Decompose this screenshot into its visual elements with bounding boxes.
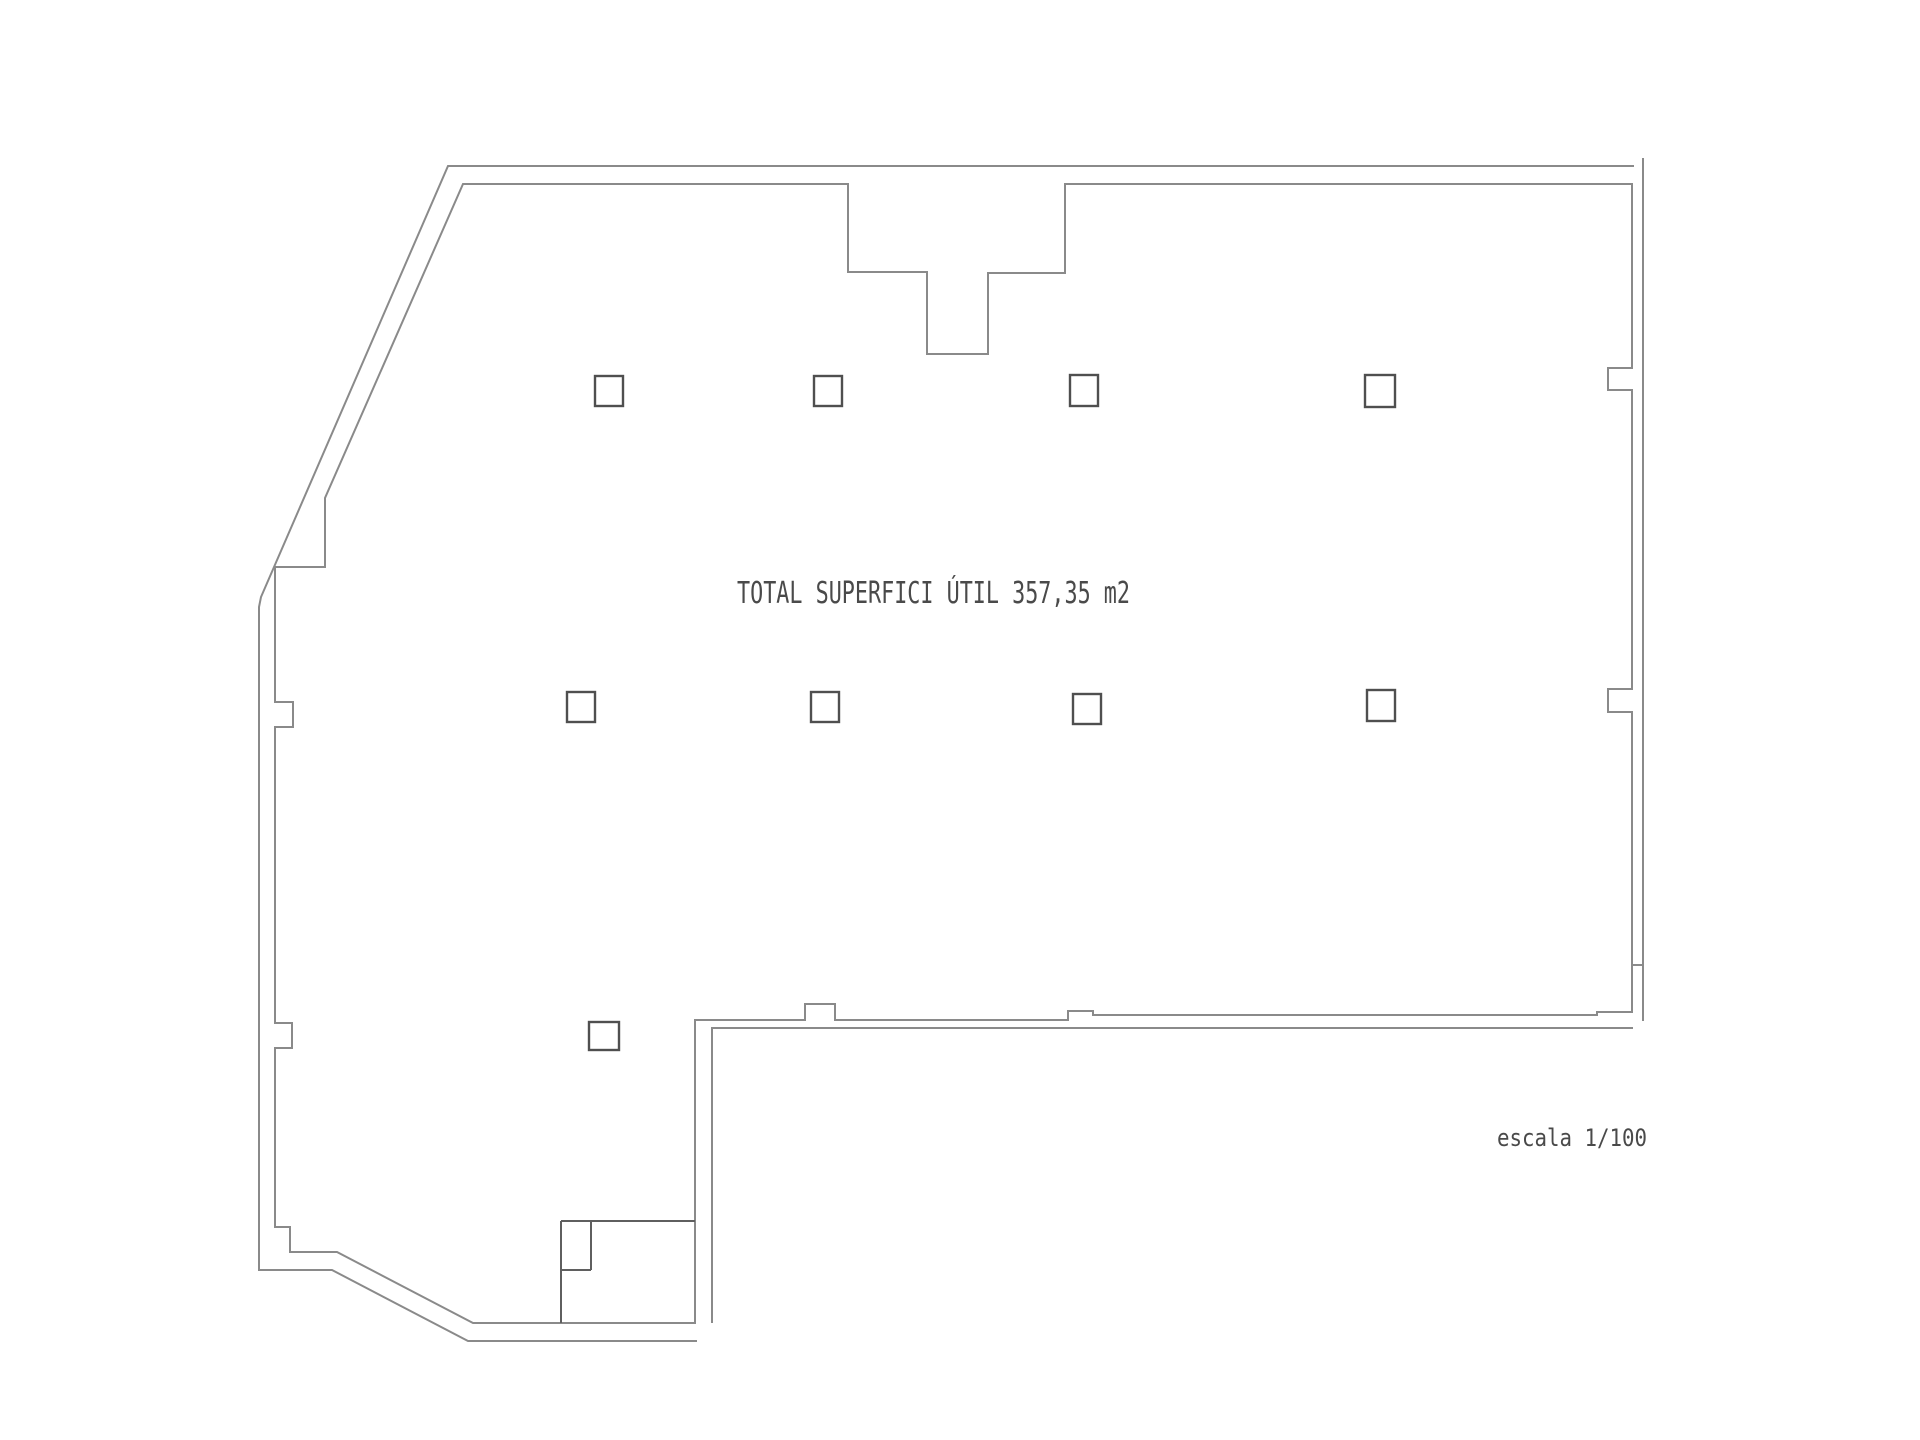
column-marker [814, 376, 842, 406]
column-marker [1070, 375, 1098, 406]
area-label: TOTAL SUPERFICI ÚTIL 357,35 m2 [737, 574, 1130, 611]
column-marker [1365, 375, 1395, 407]
outer-wall-path [259, 166, 1634, 1341]
floor-plan: TOTAL SUPERFICI ÚTIL 357,35 m2 escala 1/… [0, 0, 1920, 1440]
column-marker [1367, 690, 1395, 721]
inner-wall-path [275, 184, 1632, 1323]
column-marker [595, 376, 623, 406]
column-marker [811, 692, 839, 722]
scale-label: escala 1/100 [1497, 1124, 1647, 1152]
floor-plan-canvas: TOTAL SUPERFICI ÚTIL 357,35 m2 escala 1/… [0, 0, 1920, 1440]
column-marker [567, 692, 595, 722]
column-marker [589, 1022, 619, 1050]
column-marker [1073, 694, 1101, 724]
outer-wall-bottom [712, 1028, 1633, 1323]
